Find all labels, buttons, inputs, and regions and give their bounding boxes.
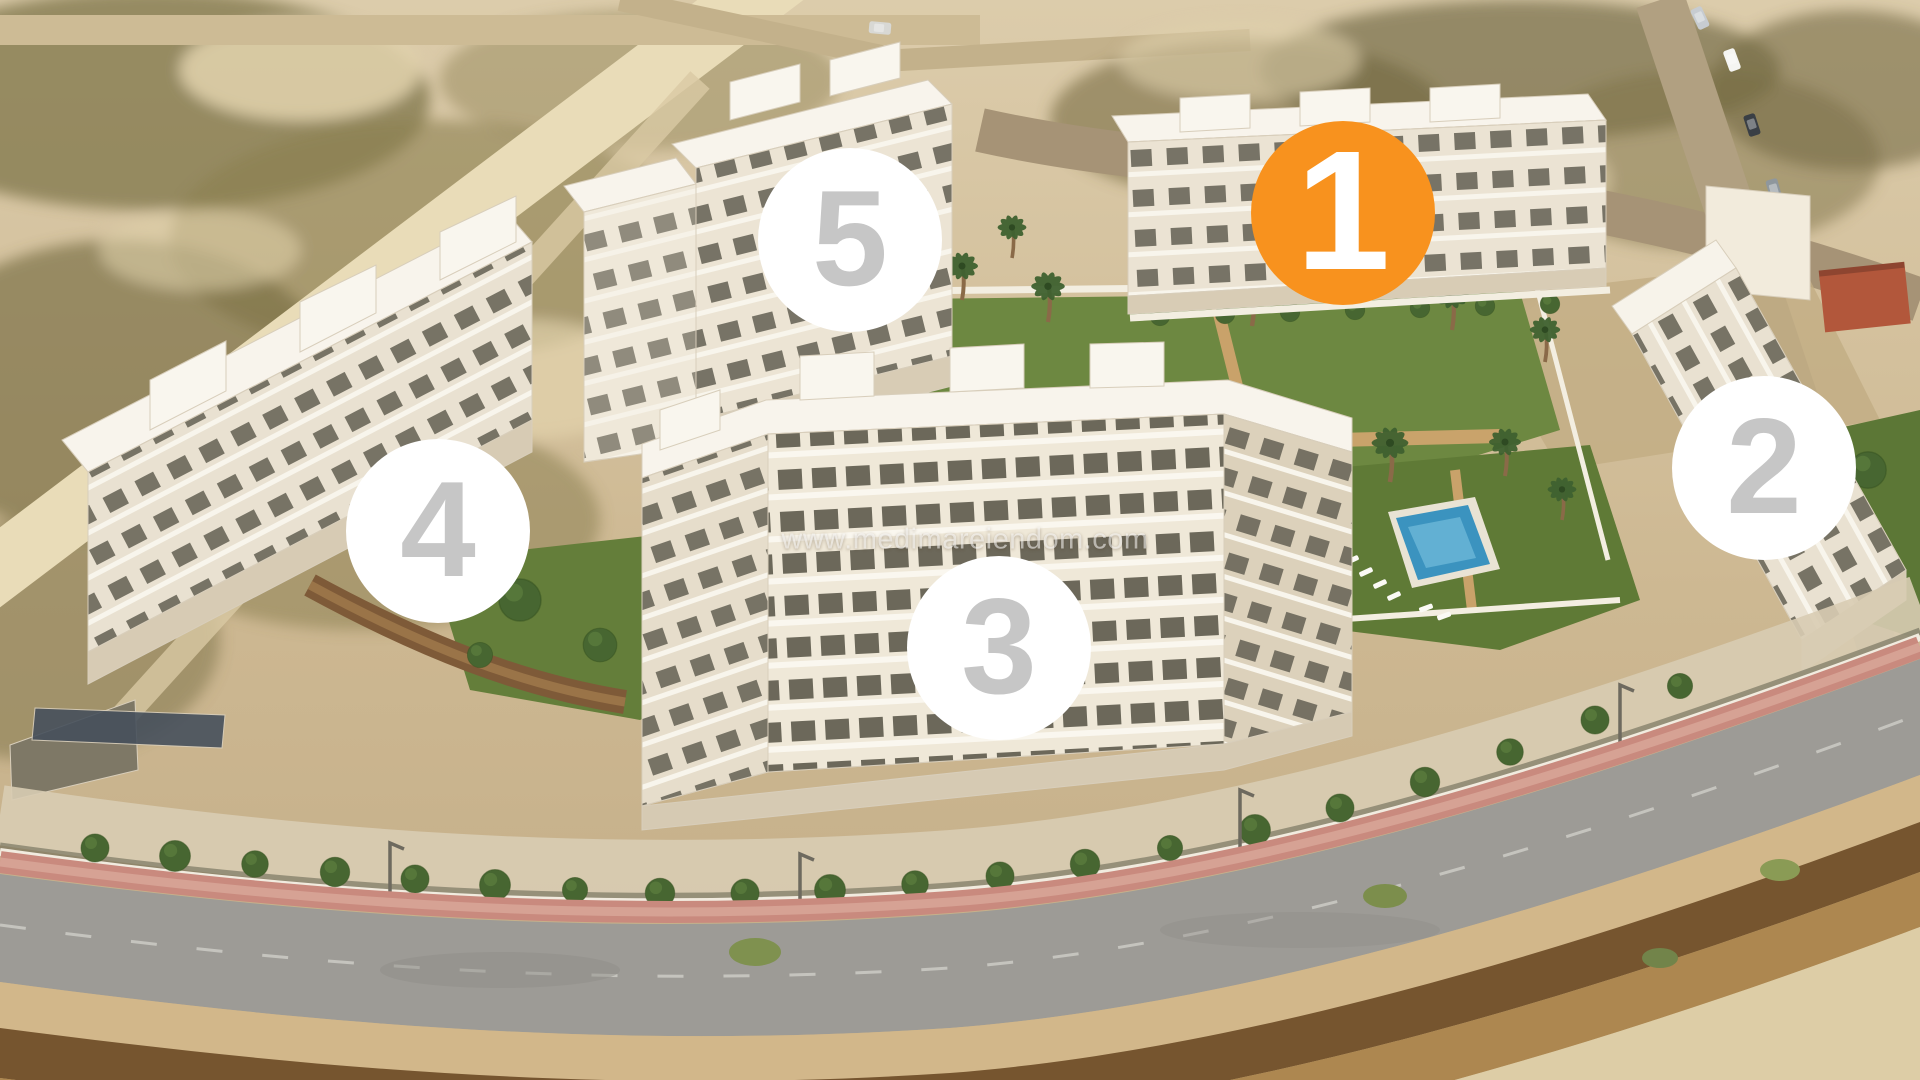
building-marker-5[interactable]: 5: [758, 148, 942, 332]
markers-layer: 12345: [0, 0, 1920, 1080]
building-marker-3[interactable]: 3: [907, 556, 1091, 740]
marker-number: 5: [812, 170, 888, 306]
marker-number: 4: [400, 461, 476, 597]
building-marker-4[interactable]: 4: [346, 439, 530, 623]
building-marker-2[interactable]: 2: [1672, 376, 1856, 560]
aerial-site-view: www.medimareiendom.com 12345: [0, 0, 1920, 1080]
marker-number: 1: [1296, 126, 1391, 296]
marker-number: 2: [1726, 398, 1802, 534]
building-marker-1[interactable]: 1: [1251, 121, 1435, 305]
marker-number: 3: [961, 578, 1037, 714]
